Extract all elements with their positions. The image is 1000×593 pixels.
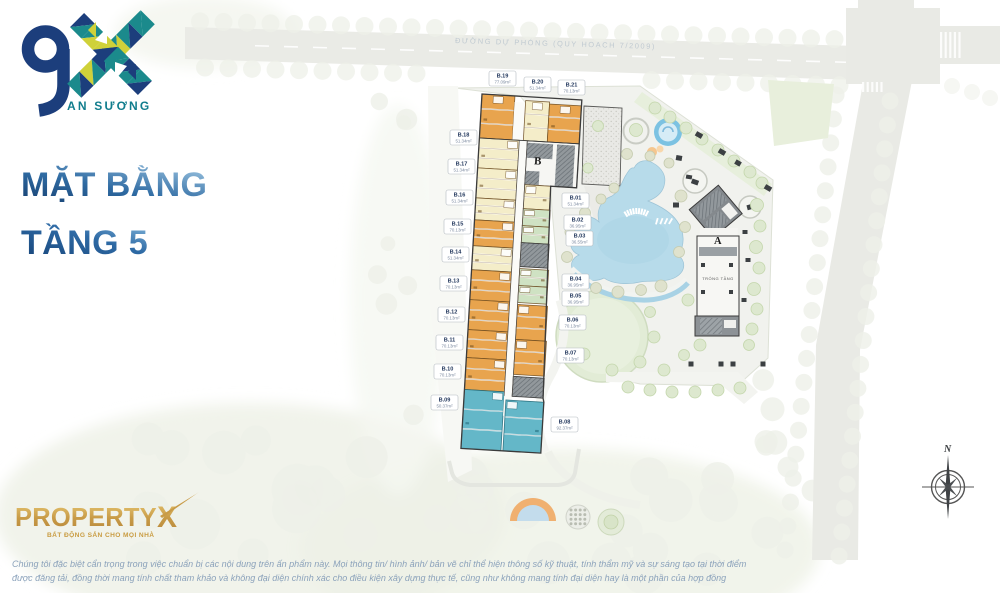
svg-text:70.13m²: 70.13m² — [443, 316, 460, 321]
svg-text:36.95m²: 36.95m² — [569, 224, 586, 229]
svg-text:51.34m²: 51.34m² — [453, 168, 470, 173]
svg-text:TẦNG 5: TẦNG 5 — [21, 224, 148, 262]
svg-text:Chúng tôi đặc biệt cẩn trọng t: Chúng tôi đặc biệt cẩn trọng trong việc … — [12, 559, 747, 569]
svg-text:51.34m²: 51.34m² — [529, 86, 546, 91]
svg-text:B: B — [534, 155, 543, 167]
svg-text:70.13m²: 70.13m² — [562, 357, 579, 362]
svg-text:70.13m²: 70.13m² — [441, 344, 458, 349]
svg-text:50.37m²: 50.37m² — [436, 404, 453, 409]
svg-text:36.55m²: 36.55m² — [571, 240, 588, 245]
svg-text:TRỐNG TẦNG: TRỐNG TẦNG — [702, 276, 734, 281]
svg-text:70.13m²: 70.13m² — [449, 228, 466, 233]
svg-text:70.13m²: 70.13m² — [563, 89, 580, 94]
svg-text:70.13m²: 70.13m² — [439, 373, 456, 378]
svg-text:51.34m²: 51.34m² — [567, 202, 584, 207]
svg-text:70.13m²: 70.13m² — [564, 324, 581, 329]
svg-text:92.37m²: 92.37m² — [556, 426, 573, 431]
svg-text:MẶT BẰNG: MẶT BẰNG — [21, 166, 207, 204]
svg-text:51.34m²: 51.34m² — [451, 199, 468, 204]
svg-text:X: X — [157, 501, 177, 534]
svg-text:77.09m²: 77.09m² — [494, 80, 511, 85]
svg-text:PROPERTY: PROPERTY — [15, 504, 157, 532]
svg-text:51.34m²: 51.34m² — [455, 139, 472, 144]
svg-text:được đăng tải, đồng thời mang: được đăng tải, đồng thời mang tính chất … — [12, 573, 726, 583]
svg-text:36.95m²: 36.95m² — [567, 300, 584, 305]
svg-text:70.13m²: 70.13m² — [445, 285, 462, 290]
svg-text:36.95m²: 36.95m² — [567, 283, 584, 288]
svg-text:A: A — [714, 236, 722, 247]
svg-text:AN SƯƠNG: AN SƯƠNG — [67, 99, 151, 113]
svg-text:N: N — [943, 444, 952, 455]
svg-text:51.34m²: 51.34m² — [447, 256, 464, 261]
